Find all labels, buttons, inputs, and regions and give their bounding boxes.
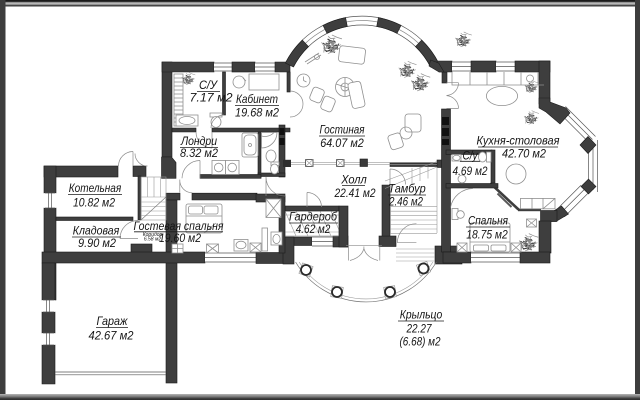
svg-text:19.68 м2: 19.68 м2 xyxy=(235,106,279,120)
svg-text:(6.68) м2: (6.68) м2 xyxy=(400,335,441,349)
svg-text:Кухня-столовая: Кухня-столовая xyxy=(477,134,561,148)
svg-text:Тамбур: Тамбур xyxy=(388,182,426,196)
svg-text:22.41 м2: 22.41 м2 xyxy=(334,186,376,200)
svg-text:Кабинет: Кабинет xyxy=(236,92,278,106)
svg-text:Гараж: Гараж xyxy=(97,314,129,328)
svg-text:19.60 м2: 19.60 м2 xyxy=(159,231,201,245)
svg-text:7.17 м2: 7.17 м2 xyxy=(190,91,233,105)
svg-text:4.69 м2: 4.69 м2 xyxy=(453,164,488,178)
svg-text:Котельная: Котельная xyxy=(69,181,122,195)
svg-text:9.90 м2: 9.90 м2 xyxy=(78,236,116,250)
svg-text:С/у: С/у xyxy=(463,149,479,163)
svg-text:Гостиная: Гостиная xyxy=(320,123,365,137)
svg-text:10.82 м2: 10.82 м2 xyxy=(73,196,115,210)
svg-text:42.70 м2: 42.70 м2 xyxy=(502,147,546,161)
svg-text:22.27: 22.27 xyxy=(406,322,433,336)
svg-text:18.75 м2: 18.75 м2 xyxy=(466,228,508,242)
svg-text:Спальня: Спальня xyxy=(468,214,508,228)
svg-text:8.32 м2: 8.32 м2 xyxy=(180,146,218,160)
svg-text:2.46 м2: 2.46 м2 xyxy=(388,195,423,209)
svg-text:Крыльцо: Крыльцо xyxy=(400,308,443,322)
svg-text:Холл: Холл xyxy=(340,173,367,187)
svg-text:64.07 м2: 64.07 м2 xyxy=(320,136,364,150)
svg-text:42.67 м2: 42.67 м2 xyxy=(89,329,134,343)
svg-text:4.62 м2: 4.62 м2 xyxy=(296,222,331,236)
